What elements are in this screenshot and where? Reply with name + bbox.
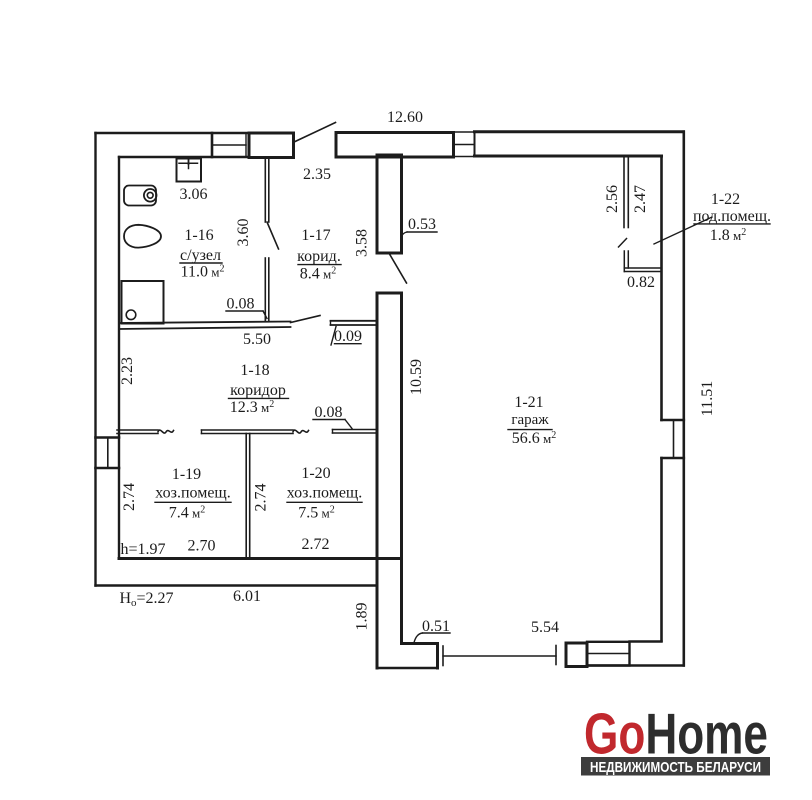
svg-text:корид.: корид. [297, 248, 341, 265]
svg-text:12.3 м2: 12.3 м2 [230, 399, 274, 416]
svg-text:10.59: 10.59 [408, 359, 425, 395]
svg-text:6.01: 6.01 [233, 588, 261, 605]
svg-text:2.72: 2.72 [302, 536, 330, 553]
svg-text:3.58: 3.58 [354, 229, 371, 257]
svg-text:1-21: 1-21 [514, 394, 543, 411]
svg-text:0.82: 0.82 [627, 274, 655, 291]
svg-text:8.4 м2: 8.4 м2 [300, 266, 336, 283]
svg-text:2.74: 2.74 [253, 484, 270, 512]
svg-text:хоз.помещ.: хоз.помещ. [155, 485, 231, 502]
svg-text:1-22: 1-22 [711, 191, 740, 208]
svg-text:1.89: 1.89 [354, 603, 371, 631]
svg-text:1-17: 1-17 [301, 227, 330, 244]
svg-text:под.помещ.: под.помещ. [693, 208, 771, 225]
svg-text:2.47: 2.47 [632, 185, 649, 213]
svg-text:11.0 м2: 11.0 м2 [181, 264, 225, 281]
svg-text:с/узел: с/узел [180, 247, 221, 264]
svg-text:12.60: 12.60 [387, 109, 423, 126]
svg-text:3.60: 3.60 [235, 219, 252, 247]
svg-text:5.54: 5.54 [531, 619, 559, 636]
svg-text:h=1.97: h=1.97 [120, 541, 165, 558]
svg-text:1-20: 1-20 [301, 465, 330, 482]
svg-text:0.09: 0.09 [334, 328, 362, 345]
svg-text:56.6 м2: 56.6 м2 [512, 430, 556, 447]
svg-text:0.51: 0.51 [422, 618, 450, 635]
svg-text:0.08: 0.08 [227, 296, 255, 313]
svg-text:1-18: 1-18 [240, 362, 269, 379]
svg-text:1-19: 1-19 [172, 466, 201, 483]
svg-text:7.4 м2: 7.4 м2 [169, 505, 205, 522]
svg-text:1-16: 1-16 [184, 227, 213, 244]
svg-text:хоз.помещ.: хоз.помещ. [287, 485, 363, 502]
svg-text:2.23: 2.23 [119, 357, 136, 385]
svg-text:3.06: 3.06 [180, 186, 208, 203]
svg-text:2.56: 2.56 [604, 185, 621, 213]
svg-text:2.35: 2.35 [303, 166, 331, 183]
svg-text:0.08: 0.08 [315, 404, 343, 421]
svg-text:гараж: гараж [511, 412, 549, 428]
svg-text:коридор: коридор [230, 382, 286, 399]
svg-text:НЕДВИЖИМОСТЬ БЕЛАРУСИ: НЕДВИЖИМОСТЬ БЕЛАРУСИ [590, 759, 761, 776]
svg-text:5.50: 5.50 [243, 331, 271, 348]
svg-text:GoHome: GoHome [584, 703, 768, 767]
svg-text:0.53: 0.53 [408, 216, 436, 233]
svg-text:7.5 м2: 7.5 м2 [298, 505, 334, 522]
svg-text:Ho=2.27: Ho=2.27 [119, 590, 173, 609]
svg-text:11.51: 11.51 [699, 381, 716, 416]
svg-text:2.74: 2.74 [121, 483, 138, 511]
svg-text:2.70: 2.70 [188, 538, 216, 555]
svg-text:1.8 м2: 1.8 м2 [710, 227, 746, 244]
